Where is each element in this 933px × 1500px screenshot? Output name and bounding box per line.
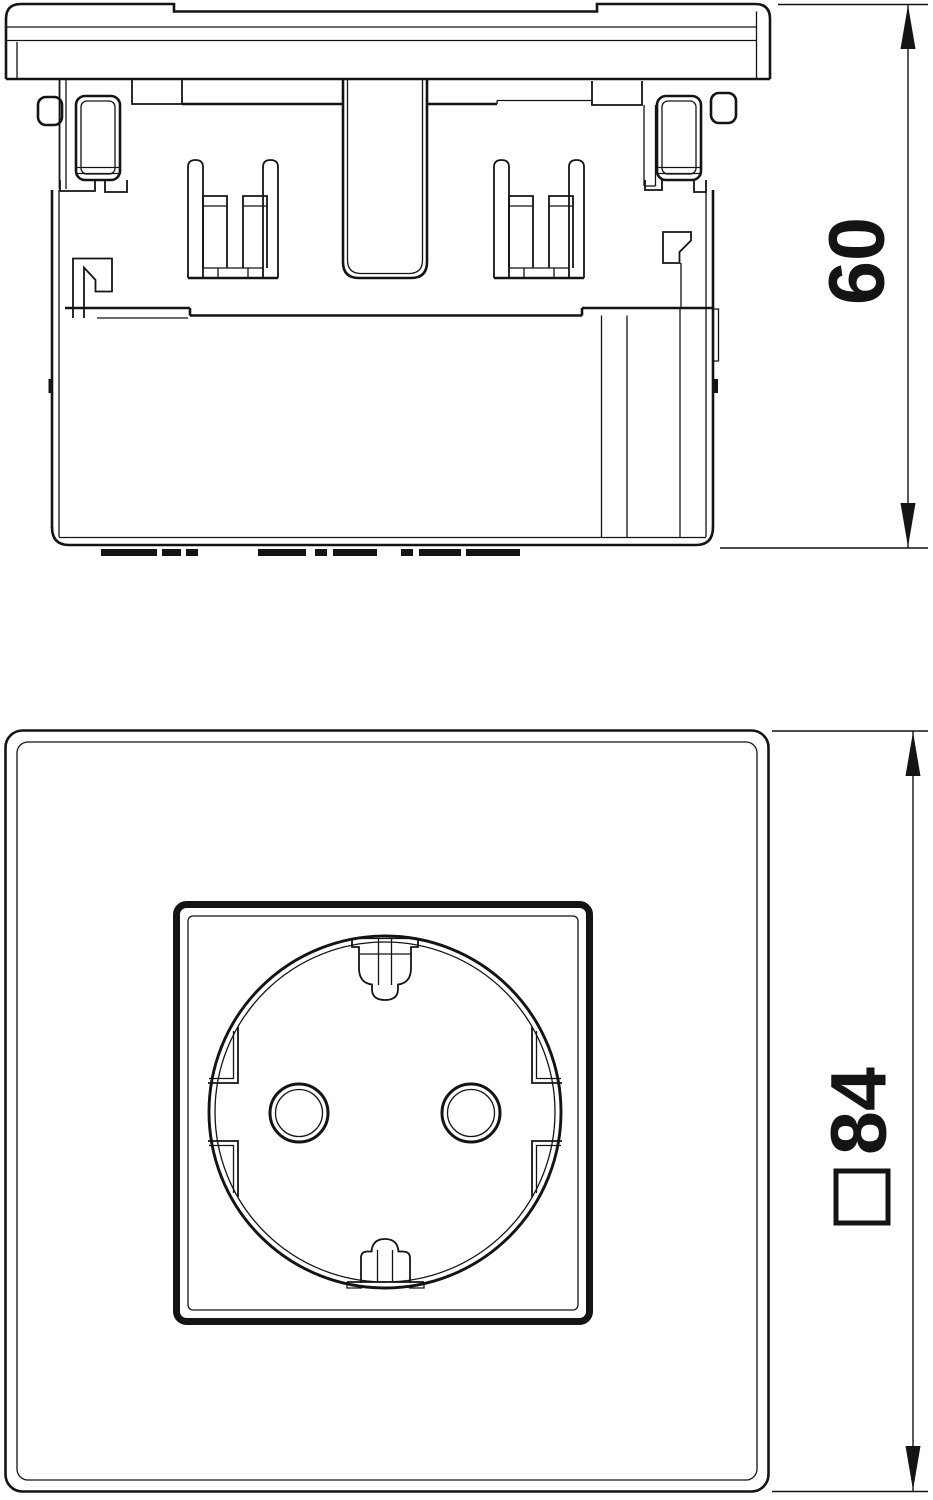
earth-clip-top [352,938,418,1000]
socket-well [209,936,561,1288]
earth-clip-bottom [347,1239,424,1288]
technical-drawing: 60 [0,0,933,1500]
side-guide-notches [208,1027,562,1197]
arrow-down-icon [906,1446,921,1490]
dimension-84: 84 [772,731,928,1492]
cover-plate-face [6,731,769,1492]
socket-frame [177,905,590,1322]
dimension-60-label: 60 [812,217,901,305]
bottom-contact-pads [101,549,520,556]
right-contact-claws [494,160,584,278]
cover-plate-profile [6,4,770,79]
right-wall-tick [714,379,719,393]
left-contact-claws [188,160,278,278]
left-side-nub [38,97,62,125]
arrow-down-icon [901,503,916,547]
body-top-edge [132,79,642,105]
dimension-84-label: 84 [814,1067,903,1155]
pin-hole-right [442,1084,500,1142]
right-mounting-claw [644,93,736,192]
side-view: 60 [6,4,928,556]
insert-housing [49,190,719,556]
right-side-nub [711,93,736,123]
pin-hole-left [270,1084,328,1142]
rear-latch-claw-right [663,232,691,307]
square-symbol-icon [836,1171,888,1223]
drawing-canvas: 60 [0,0,933,1500]
pin-holes [270,1084,500,1142]
arrow-up-icon [906,732,921,776]
front-view: 84 [6,731,929,1492]
left-mounting-claw [38,79,127,192]
dimension-60: 60 [720,5,928,549]
left-wall-tick [49,379,54,393]
center-contact-tower [343,80,427,278]
arrow-up-icon [901,5,916,49]
